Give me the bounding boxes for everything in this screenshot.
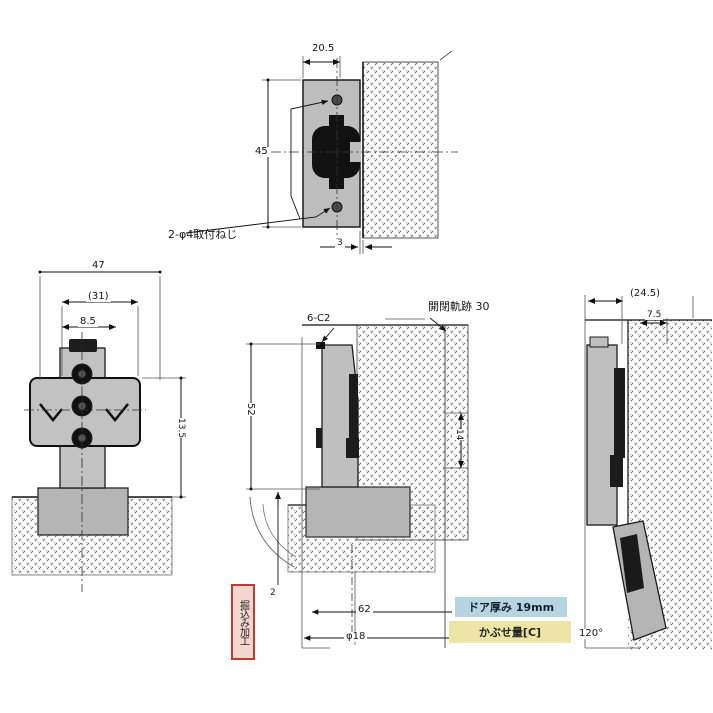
front-dim-total: 47 [90,261,107,271]
top-dim-width: 20.5 [310,44,336,54]
front-dim-pitch: (31) [86,292,111,302]
front-dim-side: 13.5 [174,418,187,438]
closed-trace-note: 開閉軌跡 30 [428,301,490,312]
top-view [186,51,458,254]
top-dim-height: 45 [253,147,270,157]
closed-dim-a: 62 [356,605,373,615]
yellow-note-box: かぶせ量[C] [449,621,571,643]
red-note-box: 掘込み加工 [231,584,255,660]
closed-dim-b: φ18 [344,632,367,642]
side-view-open [585,295,712,650]
closed-dim-depth: 14 [452,429,465,440]
closed-dim-c: 2 [268,589,278,598]
closed-chamfer-note: 6-C2 [305,314,332,324]
side-view-closed [246,318,468,648]
open-dim-a: (24.5) [628,289,662,299]
yellow-note-text: かぶせ量[C] [479,624,541,640]
technical-drawing-page: 20.5 45 3 2-φ4取付ねじ 47 (31) 8.5 13.5 6-C2… [0,0,713,713]
top-dim-gap: 3 [335,239,345,248]
open-dim-b: 7.5 [645,311,663,320]
blue-note-box: ドア厚み 19mm [455,597,567,617]
front-view [12,272,186,592]
red-note-text: 掘込み加工 [236,600,251,645]
screw-note: 2-φ4取付ねじ [168,229,237,240]
blue-note-text: ドア厚み 19mm [468,599,554,615]
front-dim-offset: 8.5 [78,317,98,327]
closed-dim-height: 52 [243,403,257,416]
open-angle: 120° [577,629,605,639]
